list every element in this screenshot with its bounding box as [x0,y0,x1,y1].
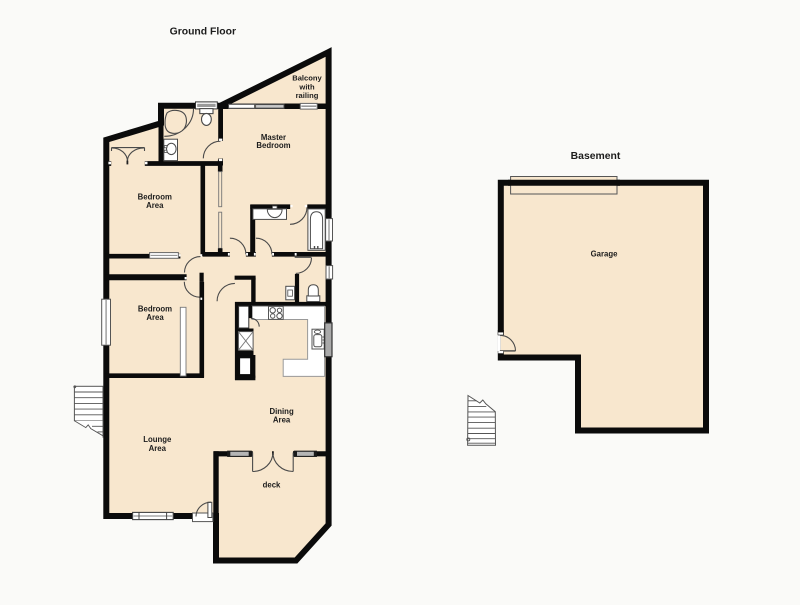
svg-text:Area: Area [149,444,167,453]
svg-text:Area: Area [273,416,291,425]
svg-text:deck: deck [263,480,281,489]
svg-text:Area: Area [146,313,164,322]
svg-text:railing: railing [296,91,319,100]
svg-text:Bedroom: Bedroom [256,141,290,150]
svg-text:Ground Floor: Ground Floor [170,27,236,38]
svg-text:Balcony: Balcony [292,74,322,83]
svg-text:Garage: Garage [591,250,619,259]
svg-text:Area: Area [146,201,164,210]
svg-text:Basement: Basement [571,151,621,162]
